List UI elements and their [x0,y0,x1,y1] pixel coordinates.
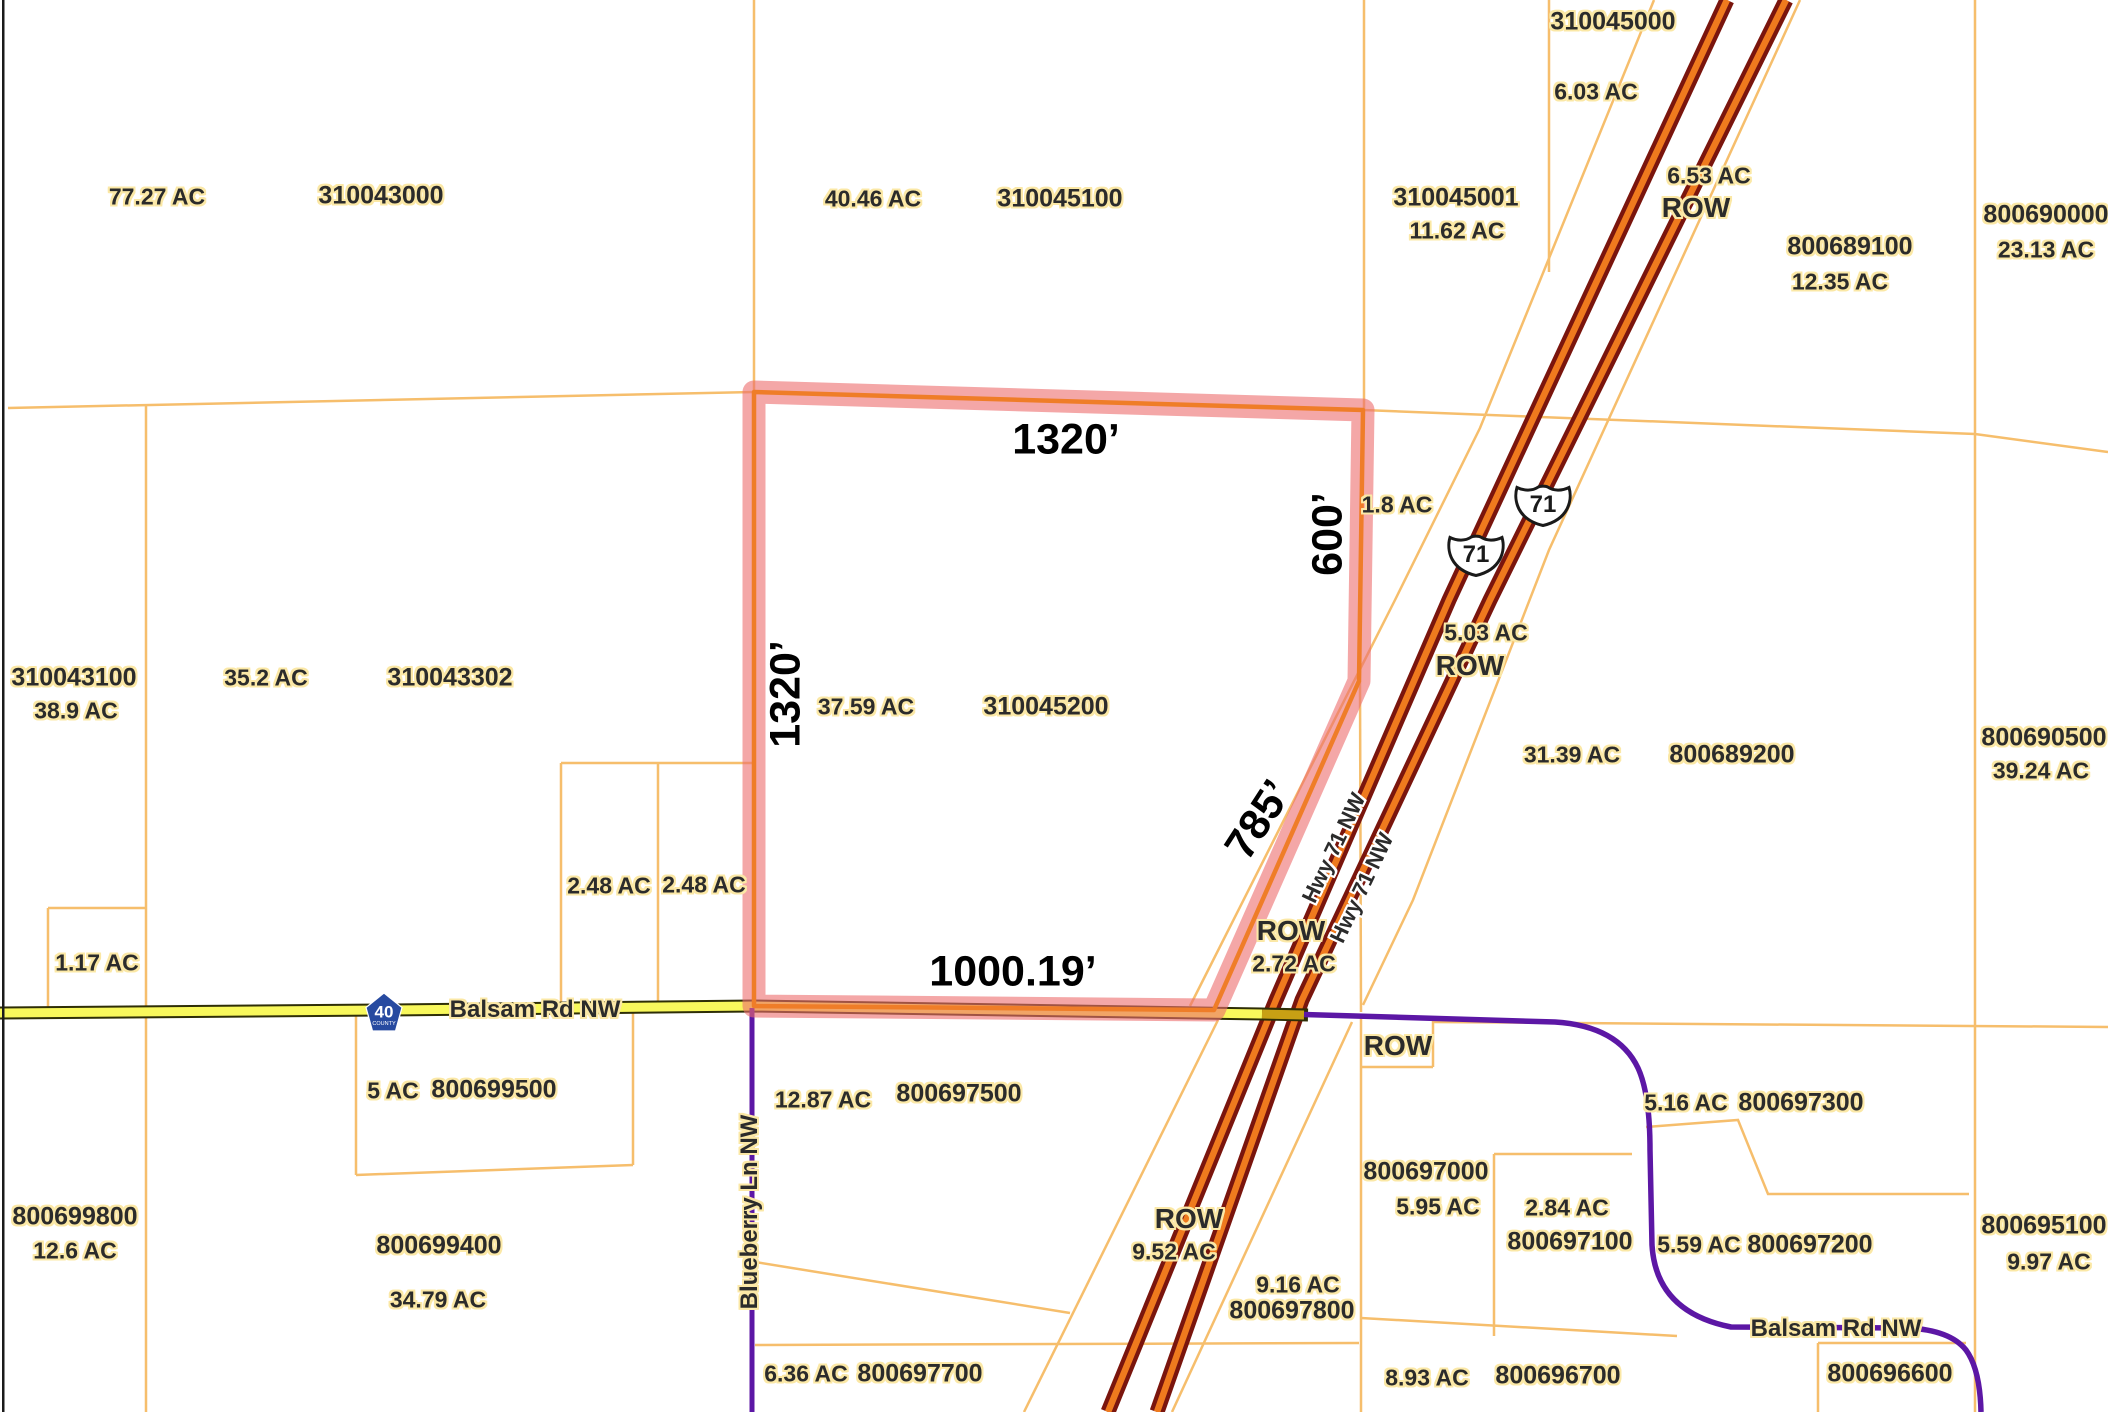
svg-text:COUNTY: COUNTY [372,1021,396,1027]
svg-text:71: 71 [1530,491,1557,518]
svg-text:71: 71 [1463,541,1490,568]
svg-text:40: 40 [375,1003,394,1022]
